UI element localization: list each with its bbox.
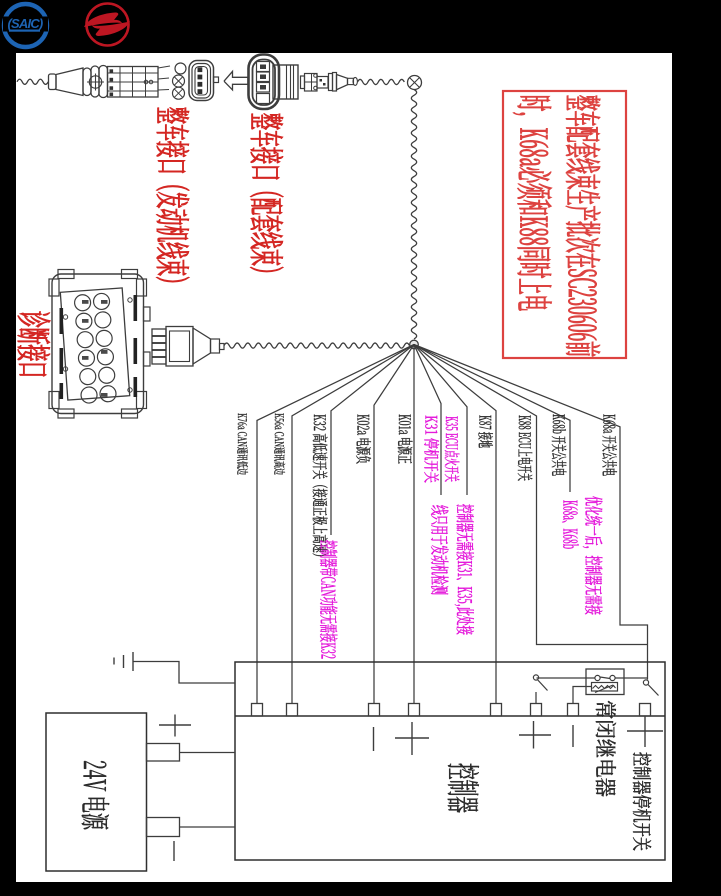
svg-text:(SAIC): (SAIC)	[8, 16, 43, 31]
